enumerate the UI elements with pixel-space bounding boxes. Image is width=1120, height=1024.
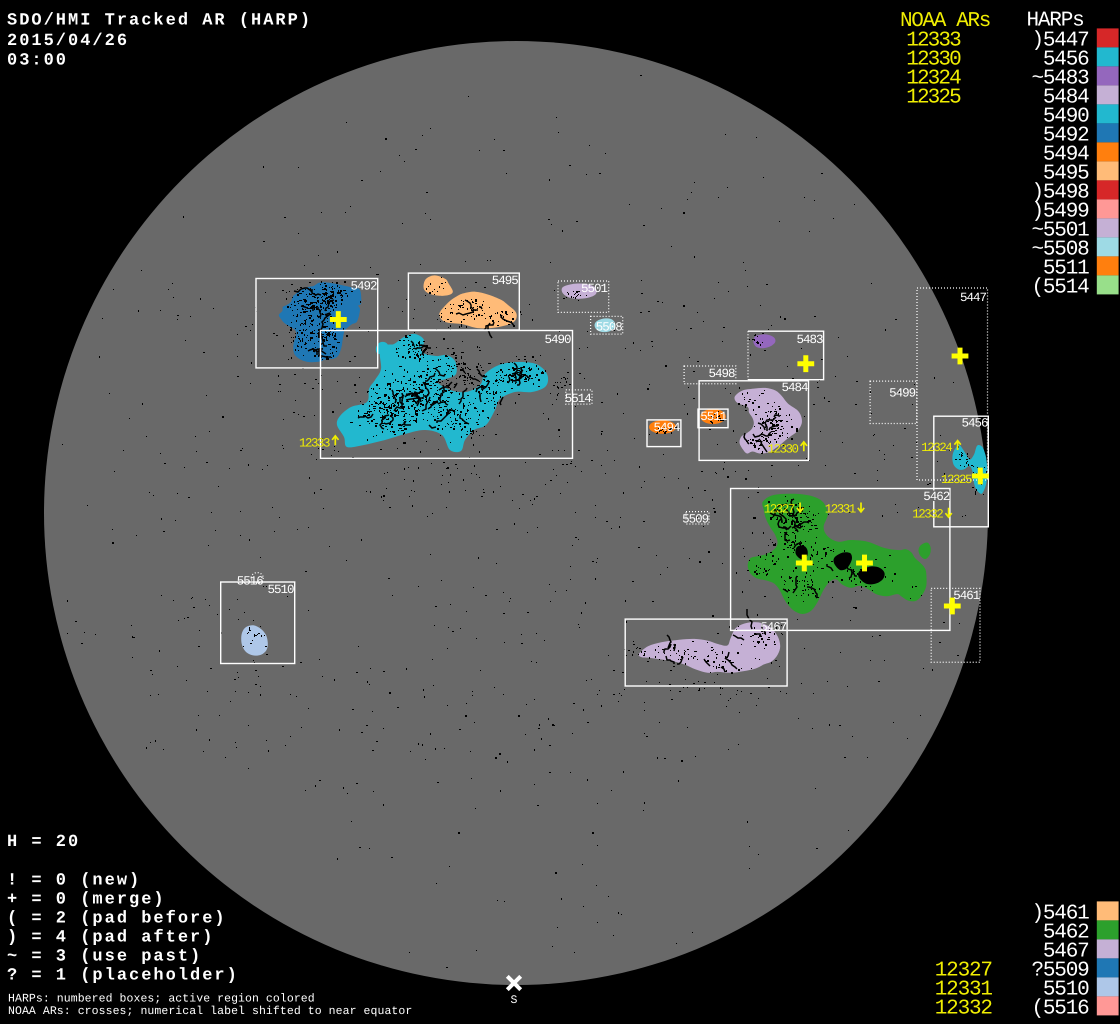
svg-text:5509: 5509 (682, 513, 709, 527)
svg-text:(5514: (5514 (1031, 276, 1089, 299)
svg-text:+ = 0 (merge): + = 0 (merge) (7, 890, 166, 909)
svg-text:5510: 5510 (267, 583, 294, 597)
svg-text:12332: 12332 (912, 508, 943, 522)
svg-text:SDO/HMI Tracked AR (HARP): SDO/HMI Tracked AR (HARP) (7, 12, 312, 31)
svg-text:5511: 5511 (700, 410, 727, 424)
svg-text:12325: 12325 (906, 86, 961, 109)
svg-text:5516: 5516 (237, 574, 264, 588)
svg-text:5495: 5495 (492, 274, 519, 288)
svg-text:( = 2 (pad before): ( = 2 (pad before) (7, 909, 227, 928)
svg-text:? = 1 (placeholder): ? = 1 (placeholder) (7, 966, 239, 985)
svg-text:5447: 5447 (960, 291, 987, 305)
svg-text:5467: 5467 (760, 621, 787, 635)
svg-text:5462: 5462 (923, 490, 950, 504)
svg-text:5456: 5456 (961, 417, 988, 431)
svg-text:H = 20: H = 20 (7, 833, 80, 852)
svg-text:5499: 5499 (889, 387, 916, 401)
svg-text:5501: 5501 (581, 282, 608, 296)
svg-text:5494: 5494 (653, 421, 680, 435)
svg-text:2015/04/26: 2015/04/26 (7, 32, 129, 51)
svg-text:5484: 5484 (781, 381, 808, 395)
svg-text:12331: 12331 (825, 503, 856, 517)
svg-text:5492: 5492 (350, 280, 377, 294)
svg-text:5498: 5498 (708, 367, 735, 381)
svg-text:12325: 12325 (941, 473, 972, 487)
svg-text:NOAA ARs: crosses; numerical l: NOAA ARs: crosses; numerical label shift… (8, 1005, 412, 1018)
svg-text:5461: 5461 (953, 589, 980, 603)
svg-text:12333: 12333 (299, 436, 330, 450)
svg-text:(5516: (5516 (1031, 997, 1089, 1020)
svg-text:5490: 5490 (544, 333, 571, 347)
svg-text:5514: 5514 (565, 392, 592, 406)
svg-text:HARPs: numbered boxes; active: HARPs: numbered boxes; active region col… (8, 993, 315, 1006)
svg-text:12330: 12330 (768, 442, 799, 456)
svg-text:5508: 5508 (596, 321, 623, 335)
svg-text:5483: 5483 (796, 333, 823, 347)
svg-text:12332: 12332 (935, 997, 993, 1020)
svg-text:S: S (511, 994, 518, 1007)
svg-text:! = 0 (new): ! = 0 (new) (7, 871, 141, 890)
svg-text:~ = 3 (use past): ~ = 3 (use past) (7, 947, 202, 966)
svg-text:12327: 12327 (764, 503, 795, 517)
svg-text:12324: 12324 (921, 441, 952, 455)
svg-text:03:00: 03:00 (7, 52, 68, 71)
svg-text:) = 4 (pad after): ) = 4 (pad after) (7, 928, 214, 947)
